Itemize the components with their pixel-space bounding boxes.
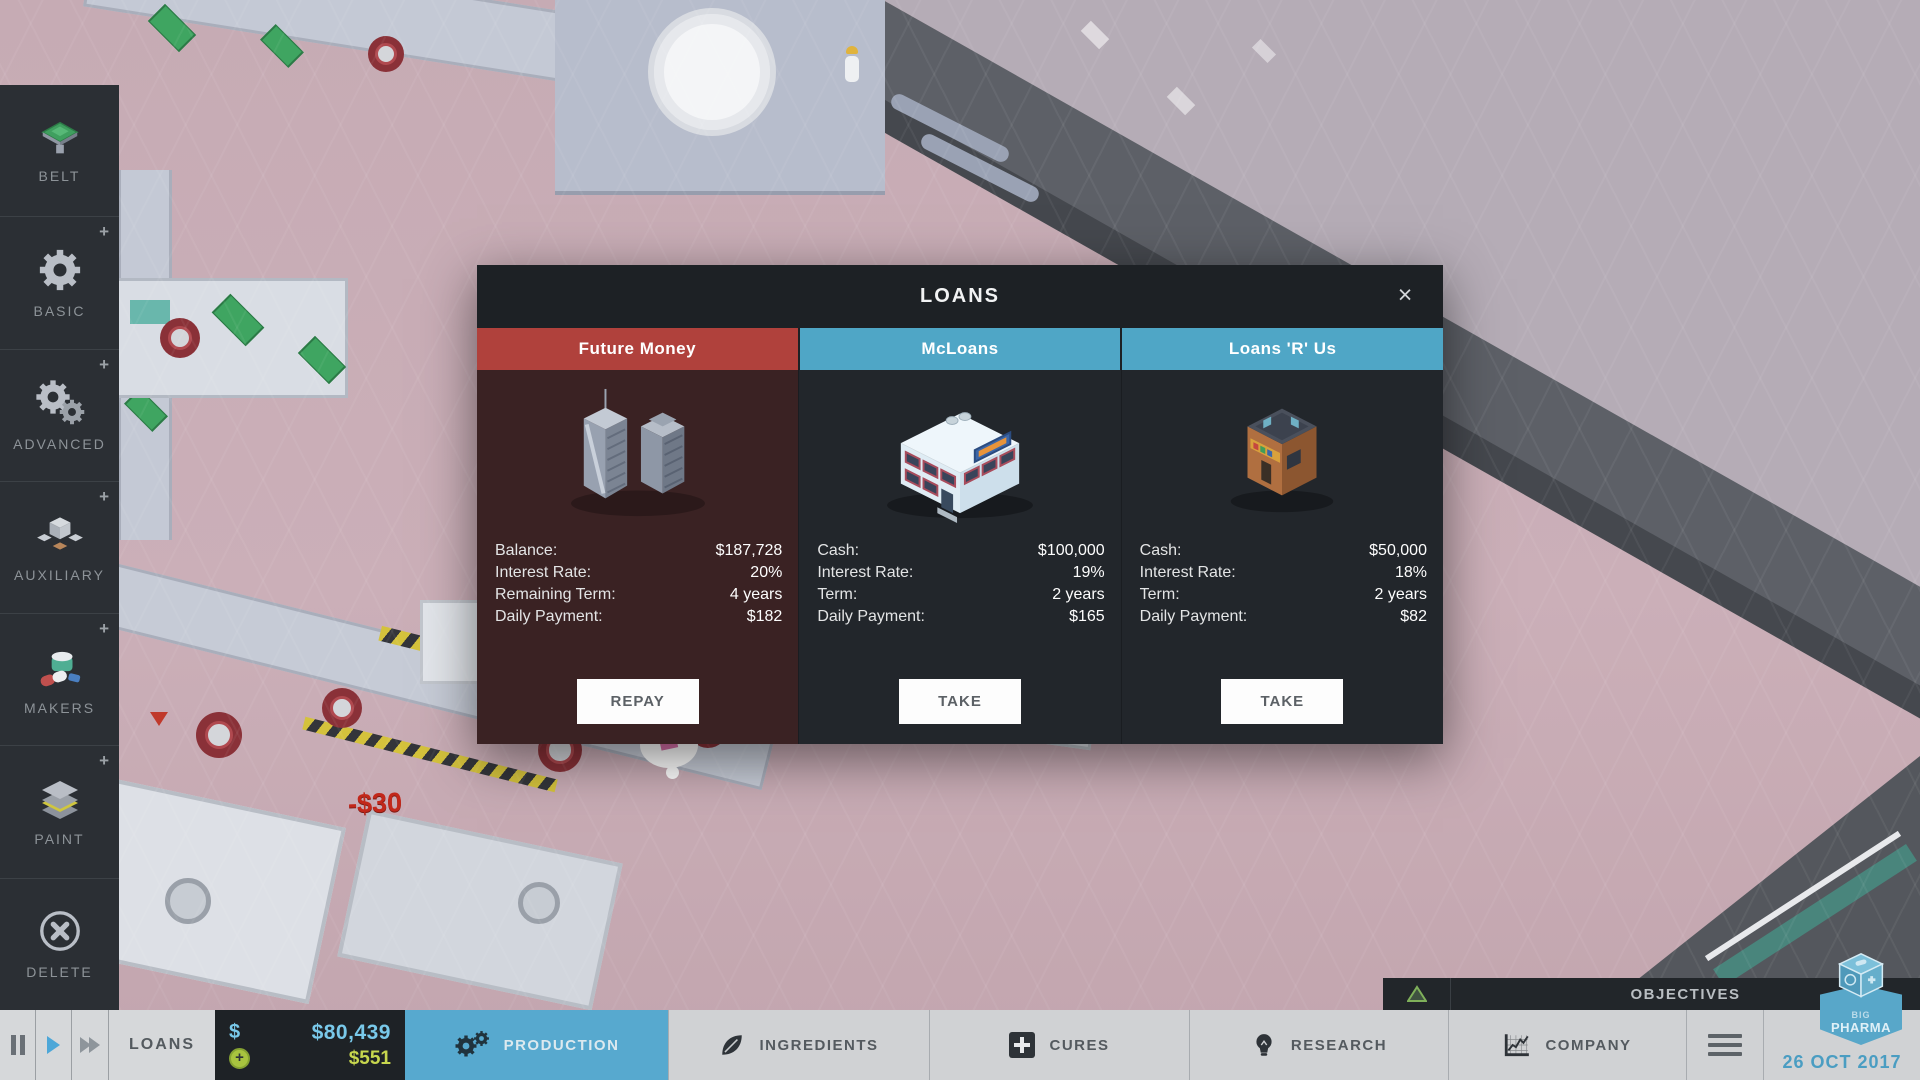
fast-forward-icon (80, 1037, 100, 1053)
stat-label: Term: (1140, 586, 1180, 608)
stat-value: $50,000 (1369, 542, 1427, 564)
sidebar-item-belt[interactable]: BELT (0, 85, 119, 217)
stat-value: 4 years (730, 586, 782, 608)
big-pharma-logo: BIG PHARMA (1820, 951, 1902, 1045)
delete-circle-x-icon (37, 908, 83, 954)
loan-stats: Balance:$187,728 Interest Rate:20% Remai… (477, 542, 798, 630)
tab-research[interactable]: RESEARCH (1189, 1010, 1448, 1080)
unlock-plus-badge: + (99, 222, 109, 242)
stat-row: Interest Rate:20% (495, 564, 782, 586)
button-area: TAKE (1122, 630, 1443, 744)
stat-value: 18% (1395, 564, 1427, 586)
stat-value: 19% (1073, 564, 1105, 586)
stat-label: Balance: (495, 542, 557, 564)
unlock-plus-badge: + (99, 355, 109, 375)
time-controls: LOANS (0, 1010, 215, 1080)
play-icon (47, 1036, 60, 1054)
stat-row: Cash:$50,000 (1140, 542, 1427, 564)
loan-stats: Cash:$100,000 Interest Rate:19% Term:2 y… (799, 542, 1120, 630)
tab-production[interactable]: PRODUCTION (405, 1010, 668, 1080)
stat-label: Term: (817, 586, 857, 608)
stat-row: Cash:$100,000 (817, 542, 1104, 564)
tab-label: PRODUCTION (504, 1037, 620, 1054)
gear-icon (37, 247, 83, 293)
pill-jar-icon (35, 644, 85, 690)
profit-row: + $551 (229, 1048, 391, 1070)
unlock-plus-badge: + (99, 487, 109, 507)
stat-label: Daily Payment: (817, 608, 925, 630)
sidebar-item-label: BASIC (33, 303, 85, 319)
repay-button[interactable]: REPAY (577, 679, 699, 724)
line-chart-icon (1503, 1032, 1531, 1058)
objectives-expand-toggle[interactable] (1383, 978, 1451, 1010)
sidebar-item-label: DELETE (26, 964, 92, 980)
stat-value: 2 years (1052, 586, 1104, 608)
hamburger-icon (1708, 1034, 1742, 1038)
tab-label: INGREDIENTS (759, 1037, 878, 1054)
stat-label: Remaining Term: (495, 586, 616, 608)
sidebar-item-paint[interactable]: + PAINT (0, 746, 119, 878)
pause-icon (11, 1035, 25, 1055)
tab-company[interactable]: COMPANY (1448, 1010, 1686, 1080)
stat-row: Balance:$187,728 (495, 542, 782, 564)
belt-icon (37, 118, 83, 158)
stat-value: 2 years (1375, 586, 1427, 608)
tab-label: RESEARCH (1291, 1037, 1387, 1054)
stat-row: Remaining Term:4 years (495, 586, 782, 608)
bottom-toolbar: LOANS $ $80,439 + $551 PRODUCTION INGRED… (0, 1010, 1920, 1080)
stat-value: $182 (747, 608, 783, 630)
play-button[interactable] (36, 1010, 71, 1080)
take-loan-button[interactable]: TAKE (899, 679, 1021, 724)
leaf-icon (719, 1032, 745, 1058)
sidebar-item-auxiliary[interactable]: + AUXILIARY (0, 482, 119, 614)
stat-row: Daily Payment:$165 (817, 608, 1104, 630)
shop-building-graphic (1122, 370, 1443, 542)
stat-value: $100,000 (1038, 542, 1105, 564)
tab-mcloans[interactable]: McLoans (798, 328, 1121, 370)
stat-row: Term:2 years (817, 586, 1104, 608)
floating-cost-text: -$30 (347, 787, 402, 820)
loan-stats: Cash:$50,000 Interest Rate:18% Term:2 ye… (1122, 542, 1443, 630)
daily-profit: $551 (349, 1048, 391, 1070)
game-date: 26 OCT 2017 (1764, 1052, 1920, 1073)
fast-forward-button[interactable] (72, 1010, 108, 1080)
sidebar-item-delete[interactable]: DELETE (0, 879, 119, 1010)
dollar-icon: $ (229, 1021, 240, 1044)
stat-label: Interest Rate: (495, 564, 591, 586)
stat-label: Daily Payment: (1140, 608, 1248, 630)
money-panel: $ $80,439 + $551 (215, 1010, 405, 1080)
loan-columns: Balance:$187,728 Interest Rate:20% Remai… (477, 370, 1443, 744)
stat-value: $82 (1400, 608, 1427, 630)
stat-label: Interest Rate: (1140, 564, 1236, 586)
take-loan-button[interactable]: TAKE (1221, 679, 1343, 724)
gears-icon (454, 1030, 490, 1060)
stat-value: $165 (1069, 608, 1105, 630)
sidebar-item-makers[interactable]: + MAKERS (0, 614, 119, 746)
loan-column-future-money: Balance:$187,728 Interest Rate:20% Remai… (477, 370, 798, 744)
stat-value: 20% (750, 564, 782, 586)
stat-label: Cash: (1140, 542, 1182, 564)
sidebar-item-advanced[interactable]: + ADVANCED (0, 350, 119, 482)
cash-row: $ $80,439 (229, 1021, 391, 1045)
stat-row: Interest Rate:18% (1140, 564, 1427, 586)
close-icon[interactable]: × (1387, 277, 1423, 313)
loan-column-mcloans: Cash:$100,000 Interest Rate:19% Term:2 y… (798, 370, 1120, 744)
office-building-icon (876, 387, 1044, 525)
double-gear-icon (34, 378, 86, 426)
profit-plus-icon: + (229, 1048, 250, 1069)
sidebar-item-label: ADVANCED (13, 436, 106, 452)
office-building-graphic (799, 370, 1120, 542)
stat-row: Interest Rate:19% (817, 564, 1104, 586)
triangle-up-icon (1407, 985, 1427, 1003)
sidebar-item-label: PAINT (34, 831, 84, 847)
stat-label: Daily Payment: (495, 608, 603, 630)
sidebar-item-basic[interactable]: + BASIC (0, 217, 119, 349)
loan-column-loans-r-us: Cash:$50,000 Interest Rate:18% Term:2 ye… (1121, 370, 1443, 744)
tab-loans-r-us[interactable]: Loans 'R' Us (1120, 328, 1443, 370)
stat-label: Interest Rate: (817, 564, 913, 586)
stat-row: Term:2 years (1140, 586, 1427, 608)
skyscraper-icon (554, 387, 722, 525)
pill-cube-icon (1833, 951, 1889, 1003)
unlock-plus-badge: + (99, 619, 109, 639)
bank-building-graphic (477, 370, 798, 542)
dialog-title: LOANS (920, 285, 1000, 308)
sidebar-item-label: BELT (39, 168, 81, 184)
logo-text-pharma: PHARMA (1831, 1020, 1891, 1035)
auxiliary-machine-icon (35, 511, 85, 557)
pause-button[interactable] (0, 1010, 35, 1080)
tab-label: CURES (1049, 1037, 1109, 1054)
stat-label: Cash: (817, 542, 859, 564)
dialog-titlebar: LOANS × (477, 265, 1443, 328)
button-area: TAKE (799, 630, 1120, 744)
logo-text-big: BIG (1851, 1011, 1870, 1020)
stat-row: Daily Payment:$82 (1140, 608, 1427, 630)
tab-label: COMPANY (1545, 1037, 1631, 1054)
button-area: REPAY (477, 630, 798, 744)
loan-provider-tabs: Future Money McLoans Loans 'R' Us (477, 328, 1443, 370)
loans-button[interactable]: LOANS (109, 1010, 215, 1080)
stat-value: $187,728 (716, 542, 783, 564)
tab-ingredients[interactable]: INGREDIENTS (668, 1010, 929, 1080)
sidebar-item-label: MAKERS (24, 700, 95, 716)
tab-cures[interactable]: CURES (929, 1010, 1189, 1080)
layers-icon (36, 777, 84, 821)
game-screen: -$30 BELT + BASIC + ADVANCED + AUXILIARY… (0, 0, 1920, 1080)
unlock-plus-badge: + (99, 751, 109, 771)
lightbulb-icon (1251, 1032, 1277, 1058)
hamburger-menu-button[interactable] (1686, 1010, 1763, 1080)
stat-row: Daily Payment:$182 (495, 608, 782, 630)
tab-future-money[interactable]: Future Money (477, 328, 798, 370)
medical-cross-icon (1009, 1032, 1035, 1058)
build-sidebar: BELT + BASIC + ADVANCED + AUXILIARY + MA… (0, 85, 119, 1010)
sidebar-item-label: AUXILIARY (14, 567, 105, 583)
cash-balance: $80,439 (312, 1021, 391, 1045)
loans-dialog: LOANS × Future Money McLoans Loans 'R' U… (477, 265, 1443, 744)
shop-building-icon (1198, 387, 1366, 525)
